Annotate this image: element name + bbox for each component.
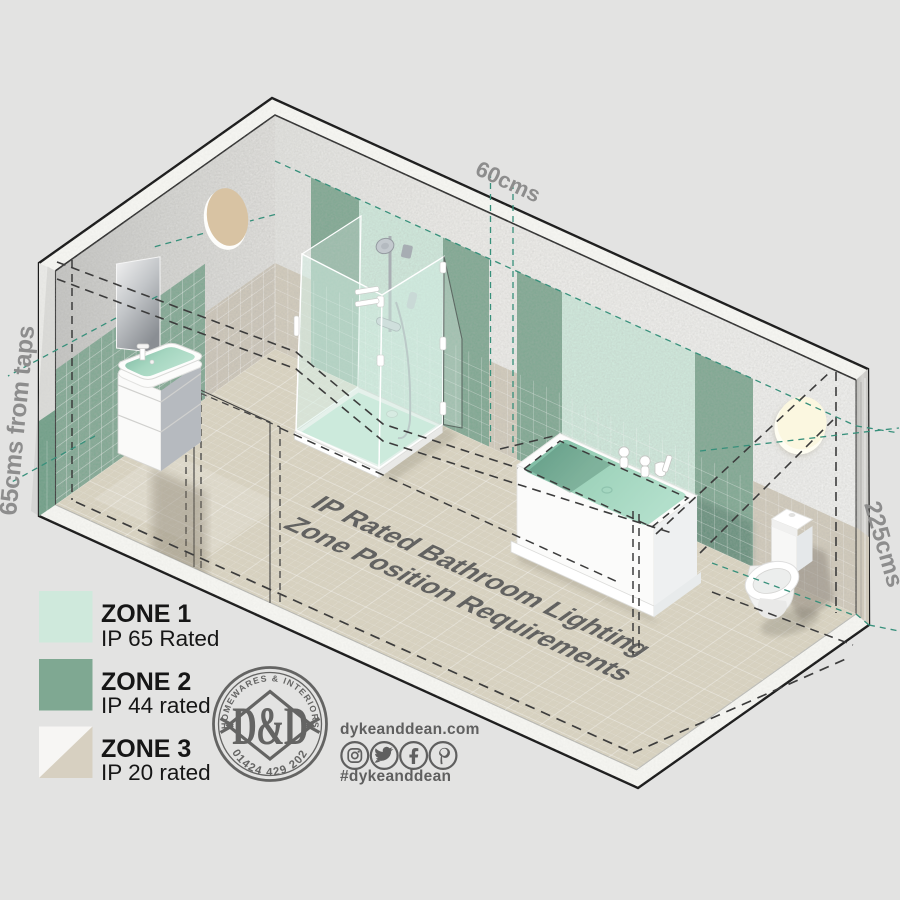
svg-text:#dykeanddean: #dykeanddean xyxy=(340,768,451,785)
svg-text:IP 20 rated: IP 20 rated xyxy=(101,760,211,785)
svg-text:ZONE 2: ZONE 2 xyxy=(101,668,191,696)
svg-text:IP 65 Rated: IP 65 Rated xyxy=(101,626,219,651)
svg-text:IP 44 rated: IP 44 rated xyxy=(101,693,211,718)
svg-text:dykeanddean.com: dykeanddean.com xyxy=(340,721,480,738)
svg-text:ZONE 1: ZONE 1 xyxy=(101,600,191,628)
svg-text:D&D: D&D xyxy=(232,696,308,756)
svg-text:ZONE 3: ZONE 3 xyxy=(101,735,191,763)
